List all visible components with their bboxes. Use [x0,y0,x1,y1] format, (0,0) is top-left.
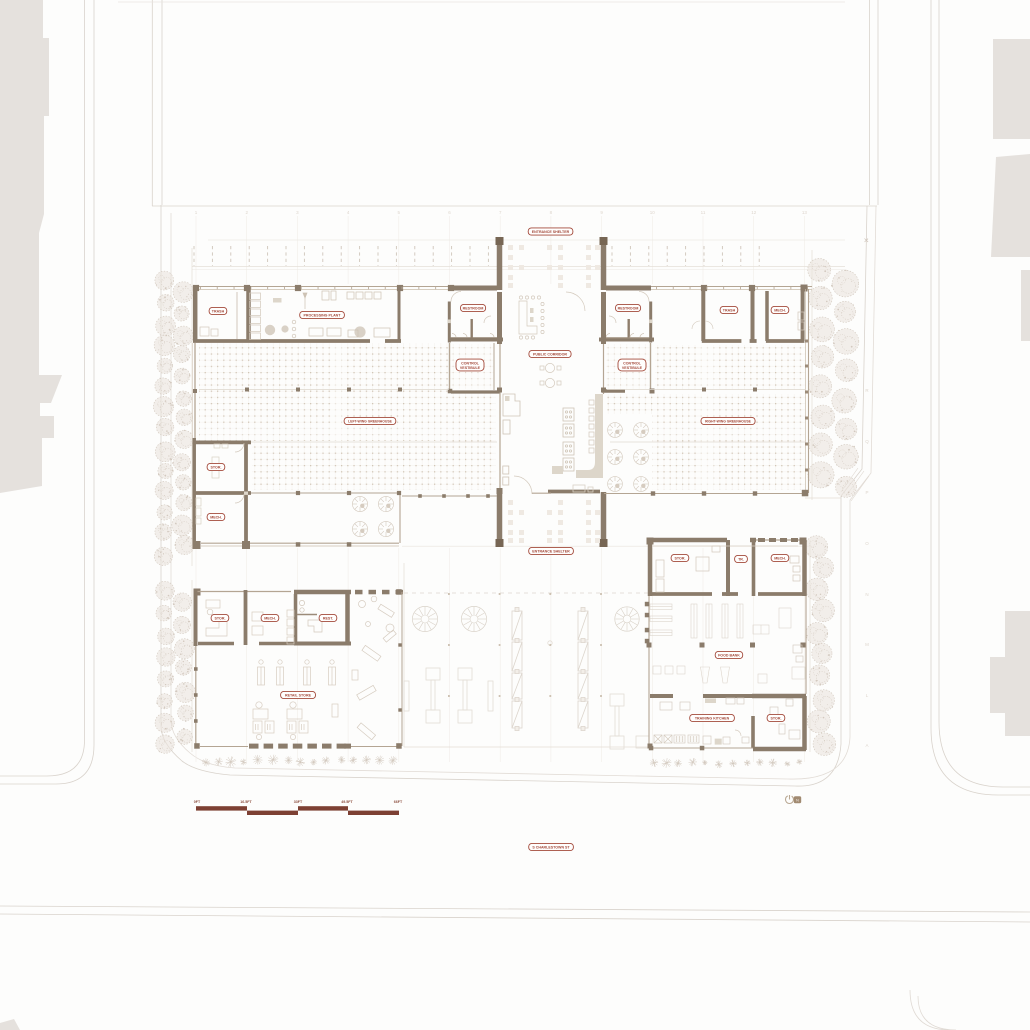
svg-text:REST.: REST. [323,616,333,620]
svg-text:12: 12 [751,210,757,215]
svg-text:STOR.: STOR. [215,616,226,620]
svg-text:M: M [865,642,869,647]
svg-text:MECH.: MECH. [210,515,222,519]
svg-text:VESTIBULE: VESTIBULE [622,366,643,370]
svg-text:MECH.: MECH. [264,616,276,620]
svg-text:P: P [865,490,868,495]
svg-text:PUBLIC CORRIDOR: PUBLIC CORRIDOR [533,352,567,356]
svg-text:N: N [865,592,868,597]
svg-text:MECH.: MECH. [774,308,786,312]
svg-text:A: A [865,743,868,748]
svg-text:FOOD BANK: FOOD BANK [718,653,740,657]
svg-text:Q: Q [865,439,869,444]
svg-text:TRASH: TRASH [723,308,736,312]
svg-text:STOR.: STOR. [675,556,686,560]
svg-text:STOR.: STOR. [771,716,782,720]
svg-text:10: 10 [650,210,656,215]
svg-text:RIGHT-WING GREENHOUSE: RIGHT-WING GREENHOUSE [705,419,752,423]
svg-text:S CHARLESTOWN ST: S CHARLESTOWN ST [532,845,570,849]
svg-text:13: 13 [802,210,808,215]
svg-text:66FT: 66FT [394,800,403,804]
svg-text:PROCESSING PLANT: PROCESSING PLANT [304,313,342,317]
svg-text:CONTROL: CONTROL [623,361,642,365]
svg-text:TRASH: TRASH [212,309,225,313]
svg-text:O: O [865,541,869,546]
svg-text:0FT: 0FT [194,800,201,804]
svg-text:ENTRANCE SHELTER: ENTRANCE SHELTER [532,549,570,553]
svg-text:VESTIBULE: VESTIBULE [460,366,481,370]
svg-text:RESTROOM: RESTROOM [618,306,639,310]
svg-text:TRAINING KITCHEN: TRAINING KITCHEN [695,716,730,720]
svg-text:RESTROOM: RESTROOM [463,306,484,310]
svg-text:ENTRANCE SHELTER: ENTRANCE SHELTER [532,230,570,234]
svg-text:N: N [796,798,799,803]
svg-text:RETAIL STORE: RETAIL STORE [285,693,312,697]
svg-text:STOR.: STOR. [211,465,222,469]
svg-text:33FT: 33FT [294,800,303,804]
svg-text:MECH.: MECH. [774,556,786,560]
svg-text:11: 11 [701,210,706,215]
svg-text:TR.: TR. [738,557,744,561]
svg-text:CONTROL: CONTROL [461,361,480,365]
svg-text:LEFT-WING GREENHOUSE: LEFT-WING GREENHOUSE [348,419,392,423]
svg-text:49.5FT: 49.5FT [341,800,353,804]
svg-text:16.5FT: 16.5FT [240,800,252,804]
